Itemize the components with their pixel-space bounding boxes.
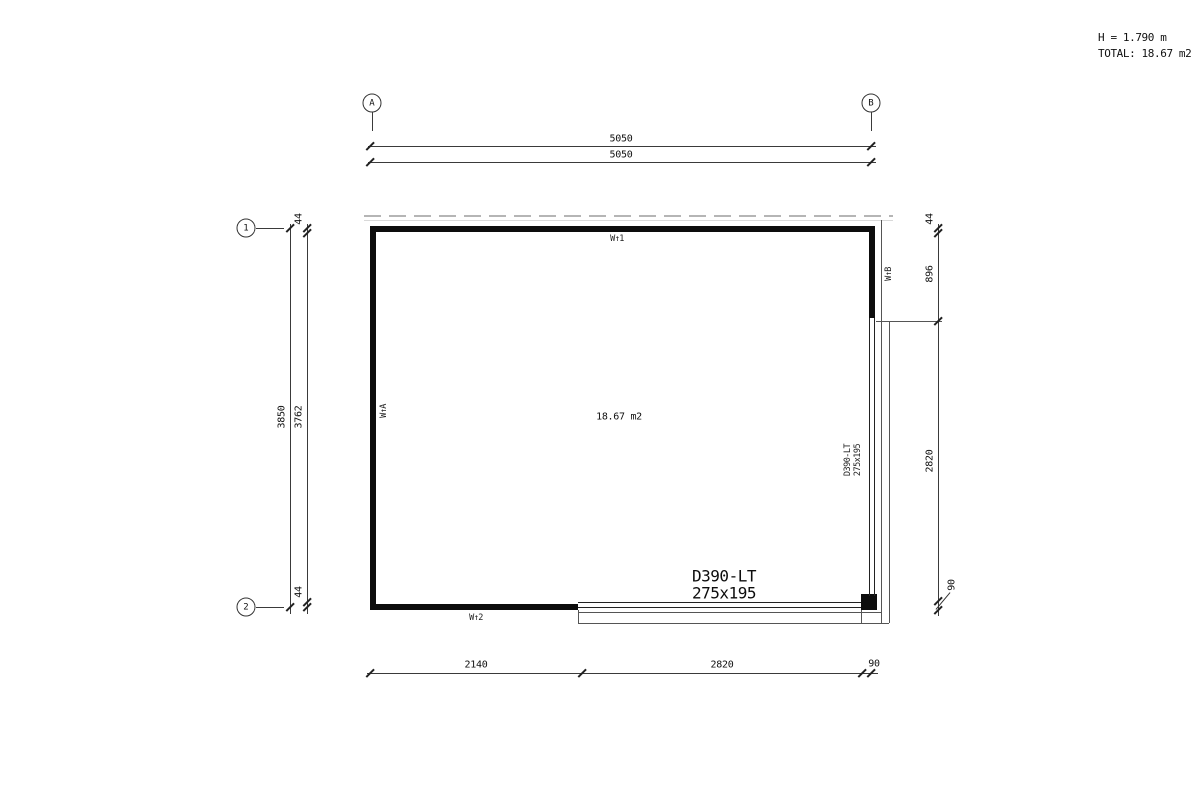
grid-label-b: B bbox=[868, 98, 873, 108]
dim-right-door: 2820 bbox=[925, 450, 936, 473]
floorplan-sheet: H = 1.790 m TOTAL: 18.67 m2 A B 1 2 5050… bbox=[0, 0, 1200, 800]
door-label-size: 275x195 bbox=[692, 584, 756, 603]
door-track-outer-line-right bbox=[881, 220, 882, 623]
wall-label-wa: W↑A bbox=[379, 404, 389, 418]
dim-left-top: 44 bbox=[294, 213, 305, 224]
dimension-line-top-outer bbox=[368, 146, 876, 147]
dimension-line-left-total bbox=[290, 224, 291, 614]
wall-bottom bbox=[370, 604, 578, 610]
dim-left-bottom: 44 bbox=[294, 586, 305, 597]
wall-label-w2: W↑2 bbox=[469, 613, 483, 623]
dim-right-top: 44 bbox=[925, 213, 936, 224]
dim-left-total: 3850 bbox=[277, 406, 288, 429]
dim-right-upper: 896 bbox=[925, 265, 936, 282]
door-track-outer-line-bottom2 bbox=[578, 623, 889, 624]
info-height: H = 1.790 m bbox=[1098, 30, 1191, 46]
dim-top-inner: 5050 bbox=[610, 150, 633, 161]
grid-bubble-1: 1 bbox=[237, 219, 256, 238]
grid-bubble-a: A bbox=[363, 94, 382, 113]
dimension-line-right bbox=[938, 224, 939, 616]
dim-bottom-door: 2820 bbox=[711, 660, 734, 671]
dim-bottom-left: 2140 bbox=[465, 660, 488, 671]
door-leaf-bottom-line bbox=[578, 607, 861, 608]
info-total-area: TOTAL: 18.67 m2 bbox=[1098, 46, 1191, 62]
door-opening-jamb-left bbox=[578, 610, 579, 623]
room-area-label: 18.67 m2 bbox=[596, 412, 642, 423]
door-opening-jamb-right bbox=[861, 610, 862, 623]
grid-stem-b bbox=[871, 112, 872, 131]
extension-line-right bbox=[876, 321, 942, 322]
wall-top bbox=[370, 226, 875, 232]
grid-stem-a bbox=[372, 112, 373, 131]
grid-bubble-b: B bbox=[862, 94, 881, 113]
wall-left bbox=[370, 226, 376, 610]
wall-label-wb: W↑B bbox=[884, 267, 894, 281]
grid-label-a: A bbox=[369, 98, 374, 108]
roof-overhang-dashed-line bbox=[364, 215, 893, 217]
door-leaf-right-line bbox=[874, 318, 875, 596]
dimension-line-left-inner bbox=[307, 224, 308, 614]
dimension-line-bottom bbox=[367, 673, 878, 674]
roof-edge-line bbox=[364, 220, 893, 221]
dimension-line-top-inner bbox=[368, 162, 876, 163]
wall-right bbox=[869, 226, 875, 318]
door-side-model: D390-LT bbox=[843, 444, 853, 476]
dim-left-inner: 3762 bbox=[294, 406, 305, 429]
grid-label-2: 2 bbox=[243, 602, 248, 612]
wall-label-w1: W↑1 bbox=[610, 234, 624, 244]
door-track-outer-line-bottom bbox=[578, 612, 881, 613]
door-corner-post bbox=[861, 594, 877, 610]
door-side-label: D390-LT 275x195 bbox=[843, 444, 863, 476]
grid-leader-1 bbox=[256, 228, 284, 229]
door-side-size: 275x195 bbox=[853, 444, 863, 476]
dim-right-post: 90 bbox=[947, 579, 958, 590]
door-leaf-right-line bbox=[869, 318, 870, 596]
dim-top-outer: 5050 bbox=[610, 134, 633, 145]
grid-label-1: 1 bbox=[243, 223, 248, 233]
grid-leader-2 bbox=[256, 607, 284, 608]
info-block: H = 1.790 m TOTAL: 18.67 m2 bbox=[1098, 30, 1191, 62]
dim-bottom-post: 90 bbox=[868, 659, 879, 670]
grid-bubble-2: 2 bbox=[237, 598, 256, 617]
door-track-outer-line-right2 bbox=[889, 321, 890, 623]
